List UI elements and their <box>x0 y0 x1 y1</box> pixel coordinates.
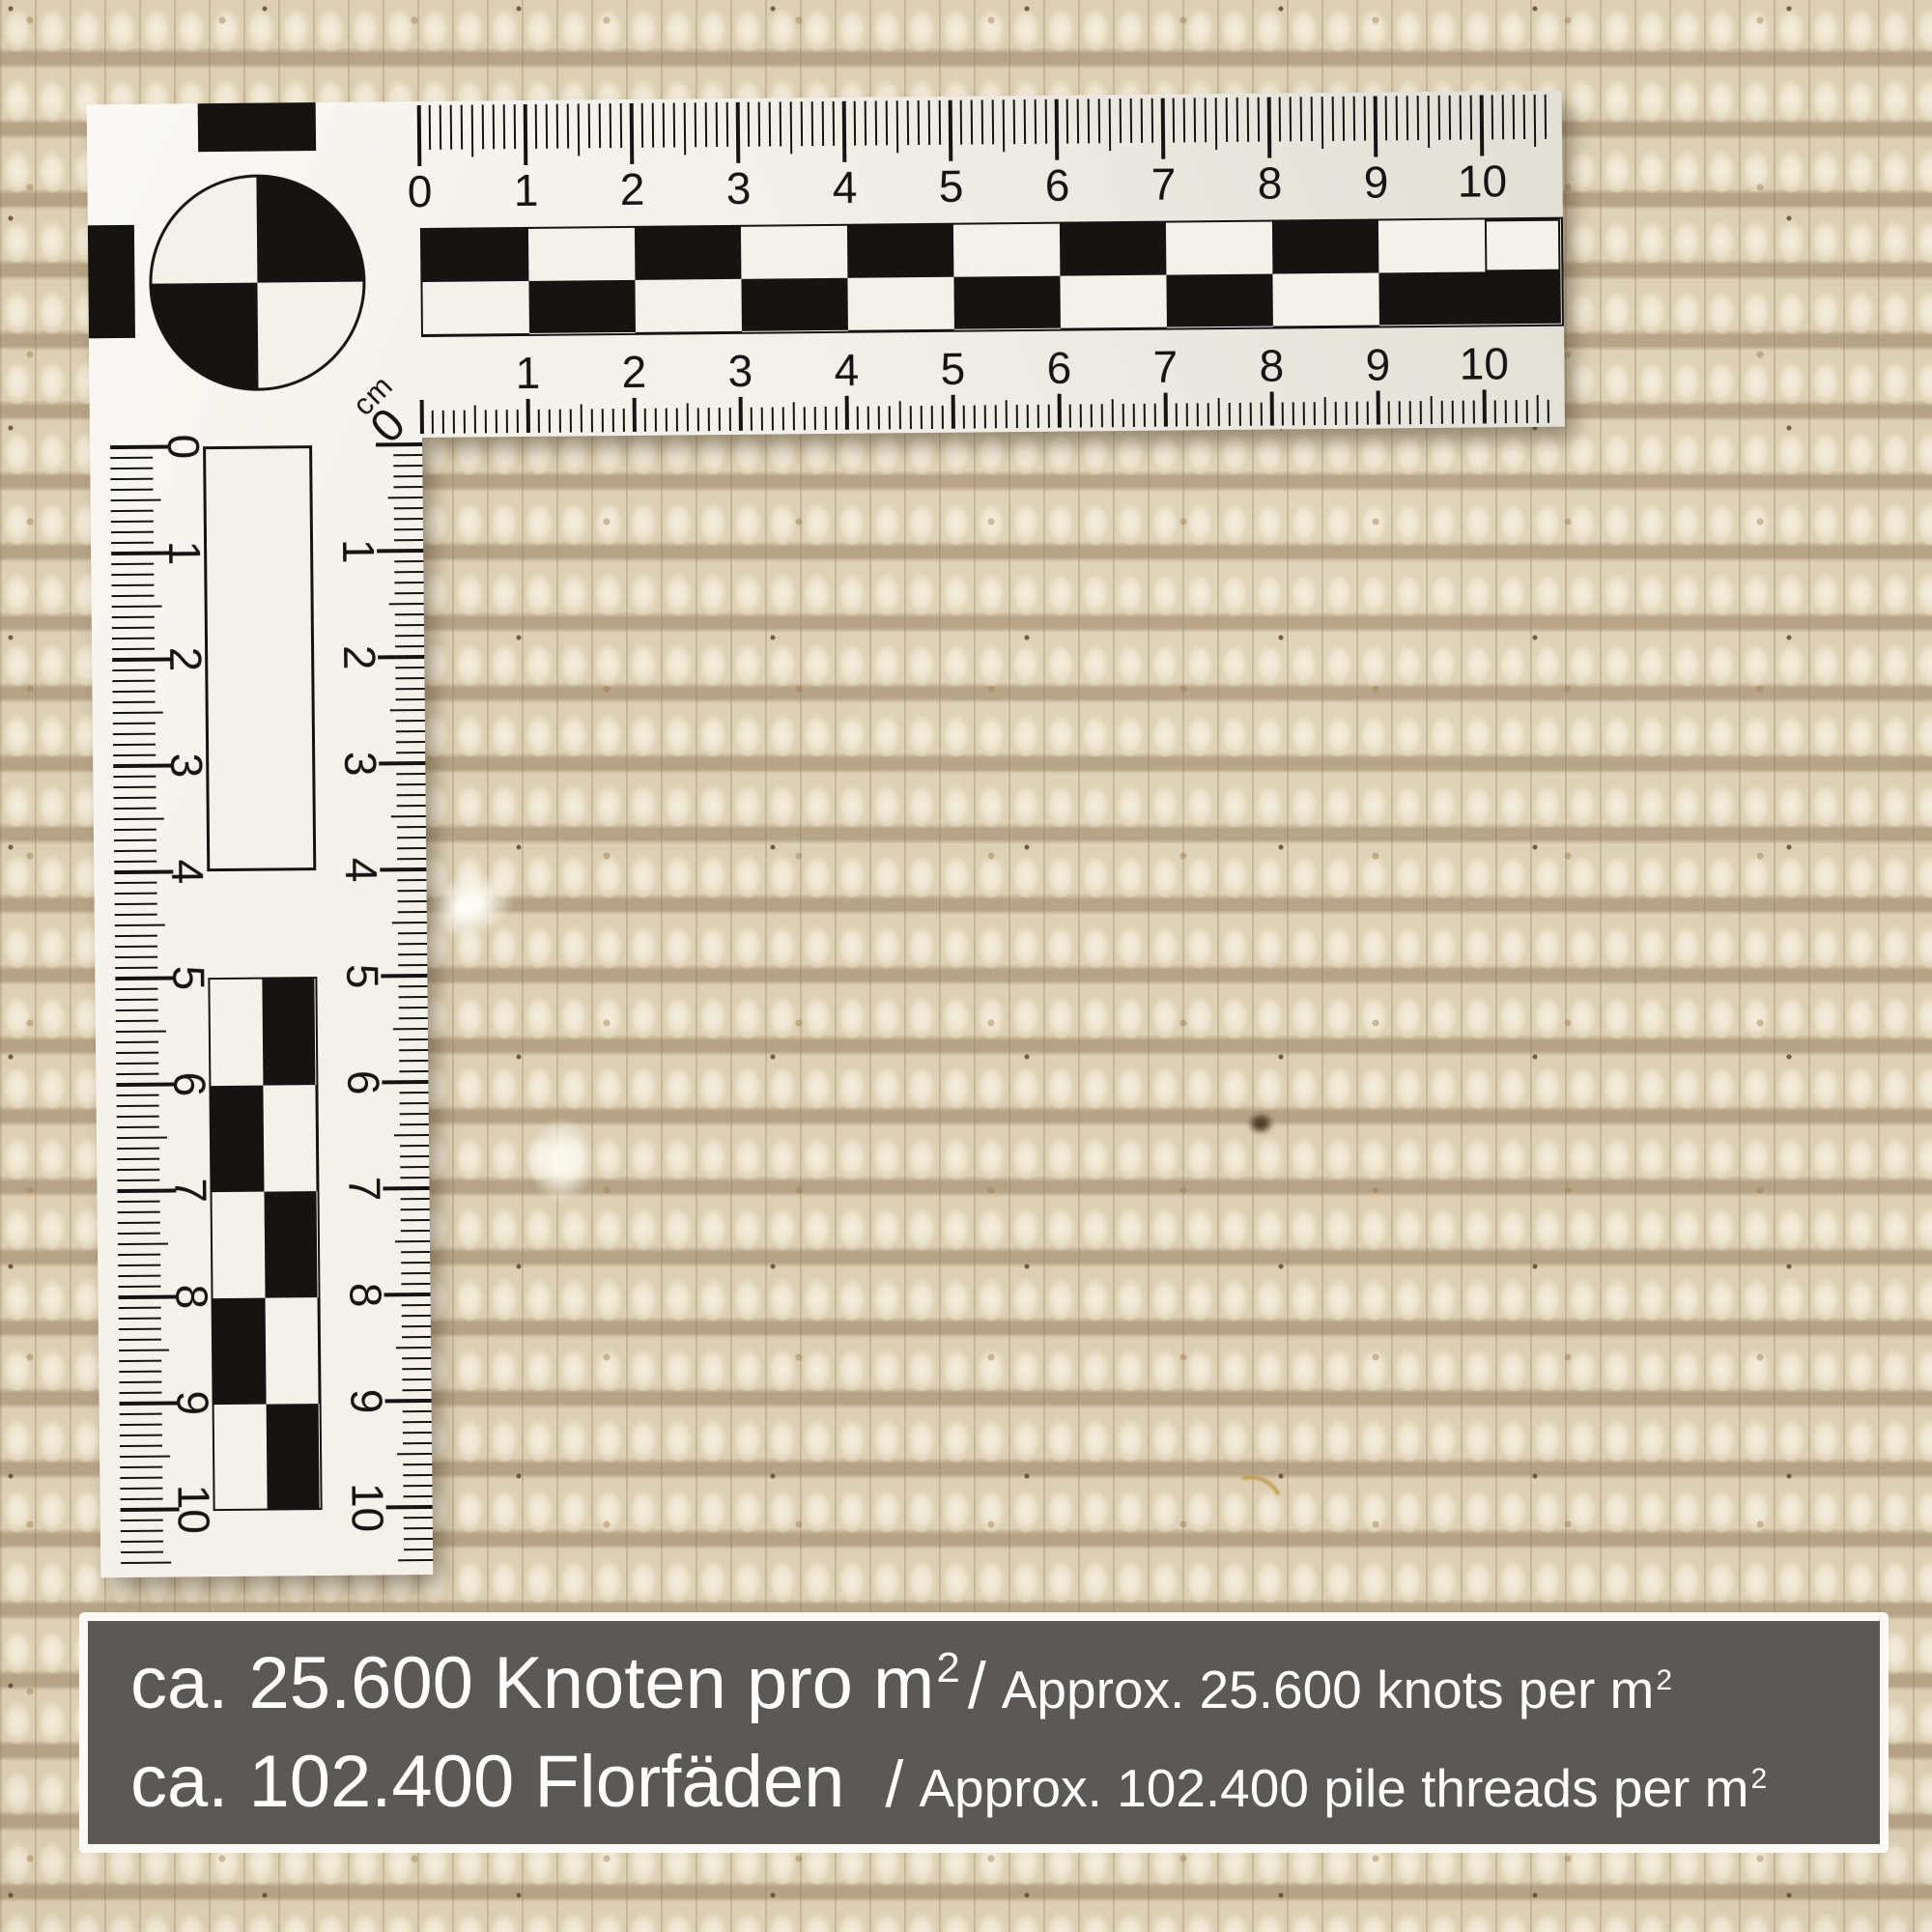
tick-mark <box>116 998 158 1001</box>
tick-mark <box>983 405 986 428</box>
tick-mark <box>1015 405 1018 428</box>
tick-mark <box>874 100 877 145</box>
tick-mark <box>718 408 721 431</box>
tick-mark <box>1161 99 1166 159</box>
fiducial-quadrant-circle <box>148 174 366 392</box>
tick-mark <box>118 1264 160 1266</box>
tick-mark <box>1512 95 1515 139</box>
tick-mark <box>927 100 930 145</box>
tick-mark <box>1108 99 1111 151</box>
tick-mark <box>821 101 824 146</box>
tick-mark <box>1374 96 1378 156</box>
tick-mark <box>1225 98 1228 142</box>
tick-mark <box>111 530 154 533</box>
tick-mark <box>381 974 427 978</box>
tick-mark <box>1087 99 1090 143</box>
tick-mark <box>1491 95 1493 139</box>
tick-mark <box>686 403 689 431</box>
tick-mark <box>398 943 427 946</box>
tick-mark <box>675 408 678 431</box>
tick-mark <box>393 1028 428 1031</box>
tick-mark <box>739 397 743 431</box>
tick-mark <box>400 1113 429 1116</box>
tick-mark <box>513 104 516 149</box>
tick-mark <box>398 932 427 935</box>
ruler-number: 4 <box>339 858 384 883</box>
tick-mark <box>111 509 154 512</box>
tick-mark <box>417 105 422 166</box>
tick-mark <box>119 1338 161 1341</box>
tick-mark <box>114 796 156 799</box>
tick-mark <box>1419 401 1422 424</box>
tick-mark <box>750 408 753 431</box>
tick-mark <box>1119 99 1122 143</box>
tick-mark <box>397 890 426 893</box>
tick-mark <box>505 410 508 433</box>
tick-mark <box>930 406 933 429</box>
tick-mark <box>120 1444 162 1447</box>
tick-mark <box>888 406 891 429</box>
tick-mark <box>1228 403 1231 426</box>
tick-mark <box>395 592 424 595</box>
tick-mark <box>877 406 880 429</box>
tick-mark <box>1384 96 1387 140</box>
tick-mark <box>399 1017 428 1020</box>
tick-mark <box>382 1080 428 1084</box>
tick-mark <box>112 690 155 693</box>
tick-mark <box>813 407 816 430</box>
tick-mark <box>1387 401 1390 424</box>
tick-mark <box>757 102 760 147</box>
checkerboard-band-horizontal <box>420 217 1564 337</box>
tick-mark <box>118 1232 160 1235</box>
ruler-number: 8 <box>343 1283 387 1308</box>
tick-mark <box>1472 401 1475 424</box>
tick-mark <box>725 102 728 147</box>
tick-mark <box>555 104 558 149</box>
tick-mark <box>1267 98 1272 158</box>
tick-mark <box>917 100 920 145</box>
tick-mark <box>842 101 847 162</box>
tick-mark <box>1100 404 1103 427</box>
english-knots-text: Approx. 25.600 knots per m <box>1002 1659 1655 1720</box>
tick-mark <box>118 1242 168 1245</box>
ruler-number: 5 <box>166 965 211 990</box>
tick-mark <box>962 406 965 429</box>
tick-mark <box>117 1147 159 1150</box>
tick-mark <box>1238 403 1241 426</box>
tick-mark <box>1097 99 1100 143</box>
ruler-number: 9 <box>170 1390 214 1415</box>
tick-mark <box>119 1349 169 1351</box>
tick-mark <box>117 1179 159 1181</box>
tick-mark <box>941 406 944 429</box>
tick-mark <box>1079 404 1082 427</box>
tick-mark <box>395 667 424 669</box>
checkerboard-end-white <box>1485 219 1561 272</box>
tick-mark <box>404 1495 433 1498</box>
tick-mark <box>111 498 161 501</box>
tick-mark <box>1310 97 1313 141</box>
tick-mark <box>402 1304 431 1307</box>
calibration-rect-left <box>88 225 135 338</box>
tick-mark <box>428 105 431 150</box>
tick-mark <box>398 985 427 988</box>
tick-mark <box>973 405 976 428</box>
tick-mark <box>1175 403 1178 426</box>
tick-mark <box>1044 99 1047 144</box>
tick-mark <box>120 1423 162 1426</box>
tick-mark <box>114 849 156 852</box>
tick-mark <box>399 996 428 999</box>
tick-mark <box>1355 402 1358 425</box>
tick-mark <box>110 456 153 459</box>
tick-mark <box>994 405 997 428</box>
banner-line-knots: ca. 25.600 Knoten pro m 2 / Approx. 25.6… <box>130 1641 1862 1725</box>
english-pile-superscript: 2 <box>1750 1763 1767 1796</box>
tick-mark <box>1462 401 1464 424</box>
tick-mark <box>115 945 157 948</box>
ruler-number: 9 <box>1363 159 1388 204</box>
tick-mark <box>662 103 665 148</box>
tick-mark <box>399 1070 428 1073</box>
tick-mark <box>400 1166 429 1169</box>
tick-mark <box>1398 401 1401 424</box>
ruler-number: 6 <box>1046 346 1071 390</box>
tick-mark <box>386 1505 433 1509</box>
tick-mark <box>401 1251 430 1254</box>
tick-mark <box>116 1030 166 1033</box>
tick-mark <box>118 1285 160 1288</box>
tick-mark <box>397 837 426 839</box>
banner-line-pile-threads: ca. 102.400 Florfäden / Approx. 102.400 … <box>130 1740 1862 1824</box>
tick-mark <box>1451 401 1454 424</box>
tick-mark <box>760 408 763 431</box>
tick-mark <box>403 1410 432 1413</box>
tick-mark <box>402 1368 431 1371</box>
tick-mark <box>824 407 827 430</box>
ruler-number: 3 <box>338 752 383 777</box>
ruler-number: 1 <box>162 540 207 565</box>
ruler-number: 2 <box>163 646 208 671</box>
tick-mark <box>920 406 923 429</box>
tick-mark <box>114 881 156 884</box>
tick-mark <box>1416 96 1419 140</box>
tick-mark <box>1544 95 1547 139</box>
tick-mark <box>768 102 771 147</box>
tick-mark <box>524 104 528 165</box>
tick-mark <box>402 1315 431 1318</box>
tick-mark <box>803 407 806 430</box>
tick-mark <box>643 409 646 432</box>
tick-mark <box>397 794 426 797</box>
tick-mark <box>394 560 423 563</box>
tick-mark <box>113 753 156 756</box>
tick-mark <box>1321 97 1323 149</box>
tick-mark <box>1377 390 1380 424</box>
tick-mark <box>396 1347 431 1350</box>
ruler-number: 8 <box>1259 343 1284 387</box>
tick-mark <box>403 1463 432 1466</box>
tick-mark <box>1143 404 1146 427</box>
tick-mark <box>398 900 427 903</box>
tick-mark <box>112 594 155 597</box>
tick-mark <box>1522 95 1525 139</box>
tick-mark <box>115 934 157 937</box>
tick-mark <box>569 410 572 433</box>
tick-mark <box>120 1434 162 1436</box>
ruler-number: 3 <box>164 753 209 778</box>
tick-mark <box>938 100 941 145</box>
tick-mark <box>121 1519 163 1521</box>
tick-mark <box>121 1561 171 1564</box>
separator-slash: / <box>968 1648 986 1723</box>
tick-mark <box>117 1136 167 1139</box>
tick-mark <box>401 1230 430 1233</box>
tick-mark <box>1172 99 1175 143</box>
tick-mark <box>114 860 156 863</box>
tick-mark <box>394 571 423 574</box>
english-knots-superscript: 2 <box>1656 1664 1672 1697</box>
tick-mark <box>121 1497 163 1500</box>
tick-mark <box>120 1487 162 1490</box>
tick-mark <box>396 741 425 744</box>
tick-mark <box>1065 99 1068 144</box>
calibration-rect-top <box>198 102 316 152</box>
tick-mark <box>116 1062 158 1065</box>
tick-mark <box>909 406 912 429</box>
tick-mark <box>1270 392 1274 426</box>
tick-mark <box>121 1529 163 1532</box>
tick-mark <box>949 100 953 161</box>
ruler-number: 10 <box>171 1485 215 1535</box>
tick-mark <box>439 105 441 150</box>
tick-mark <box>120 1465 162 1468</box>
tick-mark <box>399 1038 428 1041</box>
tick-mark <box>952 395 955 429</box>
tick-mark <box>115 966 157 969</box>
tick-mark <box>864 101 867 146</box>
ruler-number: 10 <box>1460 341 1510 385</box>
tick-mark <box>112 626 155 629</box>
tick-mark <box>120 1455 170 1458</box>
tick-mark <box>119 1359 161 1362</box>
tick-mark <box>400 1155 429 1158</box>
tick-mark <box>111 573 154 576</box>
tick-mark <box>404 1538 433 1541</box>
tick-mark <box>379 761 425 765</box>
tick-mark <box>117 1104 159 1107</box>
tick-mark <box>516 410 519 433</box>
tick-mark <box>116 1040 158 1043</box>
ruler-number: 3 <box>727 349 753 393</box>
ruler-number: 2 <box>620 167 645 212</box>
tick-mark <box>611 409 614 432</box>
tick-mark <box>495 410 497 433</box>
tick-mark <box>394 528 423 531</box>
tick-mark <box>114 828 156 831</box>
tick-mark <box>1257 98 1260 142</box>
tick-mark <box>736 102 741 163</box>
tick-mark <box>1448 96 1451 140</box>
tick-mark <box>1249 403 1252 426</box>
tick-mark <box>113 743 156 746</box>
tick-mark <box>473 405 476 433</box>
tick-mark <box>377 549 423 553</box>
tick-mark <box>111 520 154 523</box>
tick-mark <box>399 1060 428 1063</box>
tick-mark <box>400 1145 429 1148</box>
german-knots-superscript: 2 <box>936 1644 959 1692</box>
tick-mark <box>1278 97 1281 141</box>
tick-mark <box>395 645 424 648</box>
tick-mark <box>694 102 696 147</box>
tick-mark <box>1313 402 1316 425</box>
tick-mark <box>117 1157 159 1160</box>
ruler-number: 5 <box>940 347 965 391</box>
tick-mark <box>111 562 154 565</box>
tick-mark <box>400 1123 429 1126</box>
german-pile-text: ca. 102.400 Florfäden <box>130 1740 844 1824</box>
tick-mark <box>683 102 686 155</box>
tick-mark <box>397 826 426 829</box>
tick-mark <box>1352 97 1355 141</box>
tick-mark <box>1323 397 1326 425</box>
tick-mark <box>980 99 983 144</box>
tick-mark <box>393 465 422 468</box>
ruler-number: 1 <box>336 539 381 564</box>
tick-mark <box>1068 405 1071 428</box>
tick-mark <box>1122 404 1124 427</box>
tick-mark <box>380 867 426 871</box>
tick-mark <box>112 637 155 639</box>
tick-mark <box>1058 394 1062 428</box>
tick-mark <box>402 1357 431 1360</box>
tick-mark <box>1076 99 1079 143</box>
tick-mark <box>590 409 593 432</box>
info-banner: ca. 25.600 Knoten pro m 2 / Approx. 25.6… <box>79 1612 1889 1853</box>
tick-mark <box>1459 96 1462 140</box>
tick-mark <box>470 104 473 156</box>
ruler-number: 8 <box>169 1284 213 1309</box>
english-pile-text: Approx. 102.400 pile threads per m <box>919 1757 1748 1819</box>
tick-mark <box>845 396 849 430</box>
tick-mark <box>1151 99 1153 143</box>
tick-mark <box>779 101 781 146</box>
tick-mark <box>115 913 157 916</box>
tick-mark <box>853 101 856 146</box>
tick-mark <box>1153 404 1156 427</box>
tick-mark <box>111 541 154 544</box>
tick-mark <box>392 922 427 924</box>
tick-mark <box>114 807 156 810</box>
tick-mark <box>402 1325 431 1328</box>
tick-mark <box>1217 398 1220 426</box>
tick-mark <box>1047 405 1050 428</box>
tick-mark <box>1055 99 1060 160</box>
tick-mark <box>388 497 423 499</box>
tick-mark <box>1281 402 1284 425</box>
tick-mark <box>403 1421 432 1424</box>
tick-mark <box>401 1272 430 1275</box>
tick-mark <box>397 879 426 882</box>
tick-mark <box>1246 98 1249 142</box>
tick-mark <box>1406 96 1408 140</box>
tick-mark <box>1334 402 1337 425</box>
ruler-number: 4 <box>834 348 859 392</box>
tick-mark <box>121 1540 163 1543</box>
tick-mark <box>398 953 427 956</box>
tick-mark <box>1289 97 1292 141</box>
ruler-number: 6 <box>1045 163 1070 208</box>
tick-mark <box>395 1240 430 1243</box>
tick-mark <box>1504 400 1507 423</box>
tick-mark <box>601 409 604 432</box>
tick-mark <box>651 103 654 148</box>
tick-mark <box>117 1168 159 1171</box>
tick-mark <box>1292 402 1294 425</box>
tick-mark <box>113 711 163 714</box>
tick-mark <box>112 647 155 650</box>
tick-mark <box>1345 402 1348 425</box>
tick-mark <box>1331 97 1334 141</box>
tick-mark <box>402 1389 431 1392</box>
checkerboard-band-vertical <box>208 977 322 1511</box>
tick-mark <box>1525 400 1528 423</box>
tick-mark <box>665 409 668 432</box>
tick-mark <box>1196 403 1199 426</box>
ruler-number: 7 <box>342 1177 386 1202</box>
tick-mark <box>534 104 537 149</box>
tick-mark <box>401 1283 430 1286</box>
tick-mark <box>378 655 424 659</box>
tick-mark <box>396 720 425 723</box>
tick-mark <box>640 103 643 148</box>
tick-mark <box>558 410 561 433</box>
ruler-number: 0 <box>161 434 206 459</box>
tick-mark <box>119 1380 161 1383</box>
tick-mark <box>420 400 424 434</box>
tick-mark <box>728 408 731 431</box>
tick-mark <box>110 477 153 480</box>
ruler-number: 1 <box>514 168 539 213</box>
tick-mark <box>393 486 422 489</box>
tick-mark <box>577 103 580 156</box>
tick-mark <box>393 475 422 478</box>
tick-mark <box>1395 96 1398 140</box>
tick-mark <box>119 1317 161 1320</box>
tick-mark <box>113 700 156 703</box>
tick-mark <box>404 1517 433 1520</box>
tick-mark <box>117 1115 159 1118</box>
tick-mark <box>619 103 622 148</box>
tick-mark <box>112 679 155 682</box>
tick-mark <box>1005 400 1008 428</box>
tick-mark <box>959 100 962 145</box>
tick-mark <box>1299 97 1302 141</box>
ruler-number: 4 <box>833 165 858 210</box>
tick-mark <box>391 815 426 818</box>
tick-mark <box>431 411 434 434</box>
tick-mark <box>800 101 803 146</box>
tick-mark <box>398 1559 433 1562</box>
tick-mark <box>856 407 859 430</box>
tick-mark <box>397 1453 432 1456</box>
tick-mark <box>116 1009 158 1011</box>
tick-mark <box>492 104 495 149</box>
tick-mark <box>895 100 898 153</box>
tick-mark <box>1012 99 1015 144</box>
